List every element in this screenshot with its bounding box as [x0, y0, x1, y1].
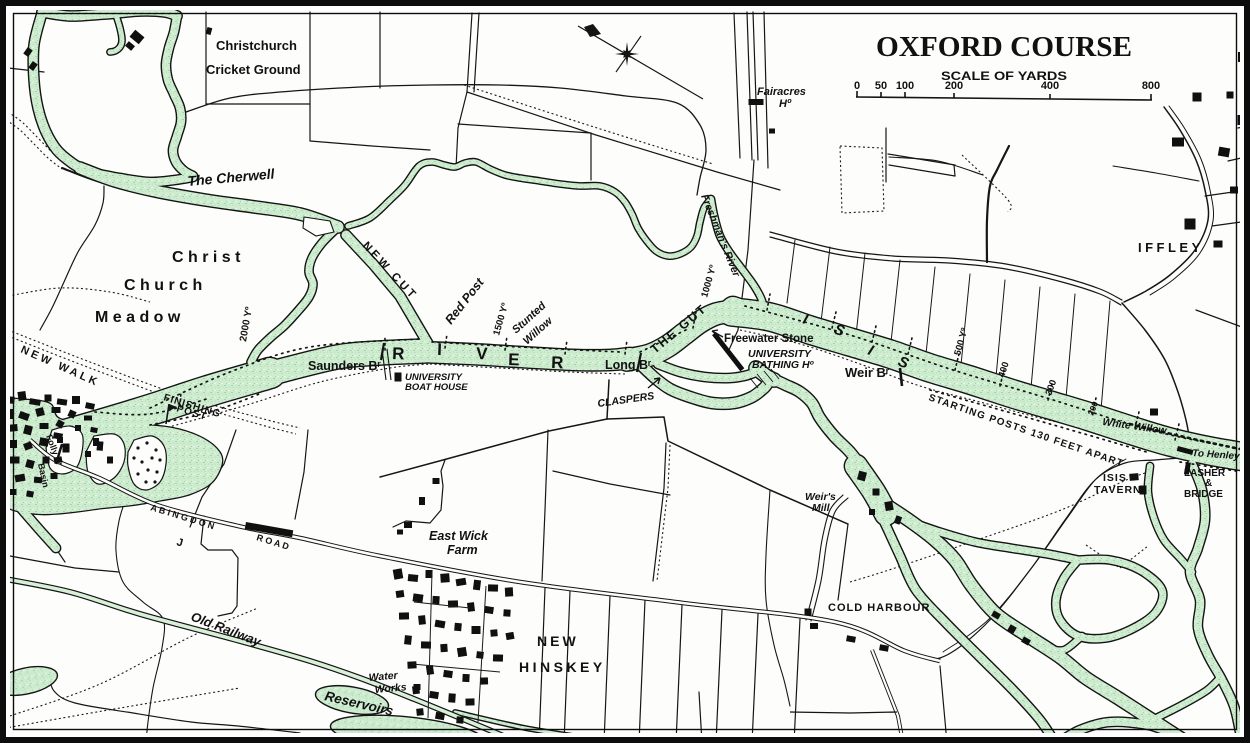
- svg-text:Christchurch: Christchurch: [216, 38, 297, 53]
- svg-text:TAVERN: TAVERN: [1094, 484, 1142, 496]
- svg-text:I: I: [437, 340, 442, 359]
- svg-text:HINSKEY: HINSKEY: [519, 659, 606, 675]
- svg-text:50: 50: [875, 80, 887, 92]
- svg-text:Farm: Farm: [447, 543, 478, 557]
- svg-text:East Wick: East Wick: [429, 529, 489, 543]
- svg-text:E: E: [508, 350, 520, 369]
- svg-text:Cricket Ground: Cricket Ground: [206, 62, 301, 77]
- svg-text:R: R: [392, 344, 405, 363]
- svg-text:R: R: [551, 353, 564, 372]
- svg-text:C h r i s t: C h r i s t: [172, 249, 241, 266]
- svg-text:Long Bʳ: Long Bʳ: [605, 358, 651, 372]
- svg-text:M e a d o w: M e a d o w: [95, 309, 181, 326]
- svg-text:Weir Bʳ: Weir Bʳ: [845, 365, 890, 380]
- svg-text:NEW: NEW: [537, 633, 579, 649]
- svg-text:COLD HARBOUR: COLD HARBOUR: [828, 602, 930, 614]
- svg-text:ISIS: ISIS: [1103, 472, 1127, 484]
- svg-text:OXFORD COURSE: OXFORD COURSE: [876, 32, 1132, 63]
- svg-text:BOAT HOUSE: BOAT HOUSE: [405, 382, 468, 393]
- svg-text:200: 200: [945, 80, 963, 92]
- svg-text:800: 800: [1142, 80, 1160, 92]
- svg-text:C h u r c h: C h u r c h: [124, 277, 202, 294]
- svg-text:BRIDGE: BRIDGE: [1184, 489, 1223, 500]
- svg-text:BATHING Hº: BATHING Hº: [752, 359, 815, 371]
- svg-text:Saunders Bʳ: Saunders Bʳ: [308, 359, 381, 373]
- svg-text:IFFLEY: IFFLEY: [1138, 240, 1204, 255]
- svg-text:Freewater Stone: Freewater Stone: [724, 333, 813, 345]
- svg-text:&: &: [1205, 478, 1212, 489]
- svg-text:0: 0: [854, 80, 860, 92]
- svg-text:V: V: [476, 344, 489, 363]
- svg-text:Mill: Mill: [812, 502, 831, 514]
- svg-text:100: 100: [896, 80, 914, 92]
- svg-text:400: 400: [1041, 80, 1059, 92]
- svg-text:Fairacres: Fairacres: [757, 86, 806, 98]
- svg-text:Hº: Hº: [779, 98, 792, 110]
